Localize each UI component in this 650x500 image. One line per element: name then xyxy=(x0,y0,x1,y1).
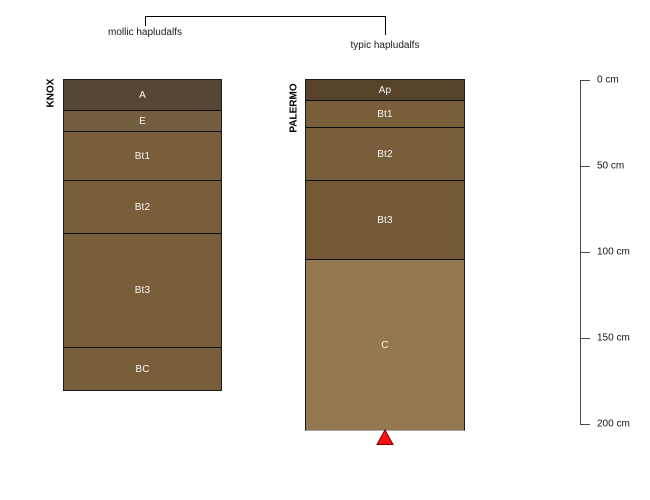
depth-axis-tick-150 xyxy=(580,338,590,339)
horizon-palermo-C: C xyxy=(306,260,464,430)
profile-id-palermo: PALERMO xyxy=(289,83,300,132)
bracket-right-drop-line xyxy=(385,16,386,35)
truncation-triangle-icon xyxy=(376,429,394,446)
horizon-palermo-Bt2: Bt2 xyxy=(306,128,464,181)
depth-axis-label-150: 150 cm xyxy=(597,333,630,344)
horizon-label-A: A xyxy=(139,90,146,101)
classification-label-mollic: mollic hapludalfs xyxy=(108,27,182,38)
depth-axis-tick-200 xyxy=(580,424,590,425)
horizon-label-Bt1: Bt1 xyxy=(377,109,393,120)
horizon-knox-Bt3: Bt3 xyxy=(64,234,221,348)
depth-axis-tick-100 xyxy=(580,252,590,253)
horizon-label-C: C xyxy=(381,340,388,351)
bracket-top-line xyxy=(145,16,385,17)
profile-column-knox: A E Bt1 Bt2 Bt3 BC xyxy=(63,79,222,391)
horizon-palermo-Bt3: Bt3 xyxy=(306,181,464,260)
horizon-knox-Bt2: Bt2 xyxy=(64,181,221,234)
depth-axis-label-100: 100 cm xyxy=(597,247,630,258)
horizon-palermo-Ap: Ap xyxy=(306,80,464,101)
horizon-label-BC: BC xyxy=(135,364,149,375)
bracket-left-drop-line xyxy=(145,16,146,26)
depth-axis-label-0: 0 cm xyxy=(597,75,619,86)
horizon-label-Bt2: Bt2 xyxy=(135,202,151,213)
horizon-knox-BC: BC xyxy=(64,348,221,390)
depth-axis-tick-0 xyxy=(580,80,590,81)
horizon-knox-Bt1: Bt1 xyxy=(64,132,221,181)
horizon-label-E: E xyxy=(139,116,146,127)
classification-label-typic: typic hapludalfs xyxy=(351,40,420,51)
horizon-knox-E: E xyxy=(64,111,221,132)
horizon-label-Ap: Ap xyxy=(379,85,392,96)
depth-axis-tick-50 xyxy=(580,166,590,167)
horizon-label-Bt3: Bt3 xyxy=(377,215,393,226)
depth-axis-label-200: 200 cm xyxy=(597,419,630,430)
horizon-knox-A: A xyxy=(64,80,221,111)
figure-canvas: { "figure": { "background": "#ffffff", "… xyxy=(0,0,650,500)
depth-axis-label-50: 50 cm xyxy=(597,161,624,172)
profile-column-palermo: Ap Bt1 Bt2 Bt3 C xyxy=(305,79,465,431)
horizon-label-Bt3: Bt3 xyxy=(135,285,151,296)
horizon-label-Bt2: Bt2 xyxy=(377,149,393,160)
horizon-label-Bt1: Bt1 xyxy=(135,151,151,162)
horizon-palermo-Bt1: Bt1 xyxy=(306,101,464,128)
profile-id-knox: KNOX xyxy=(46,79,57,108)
